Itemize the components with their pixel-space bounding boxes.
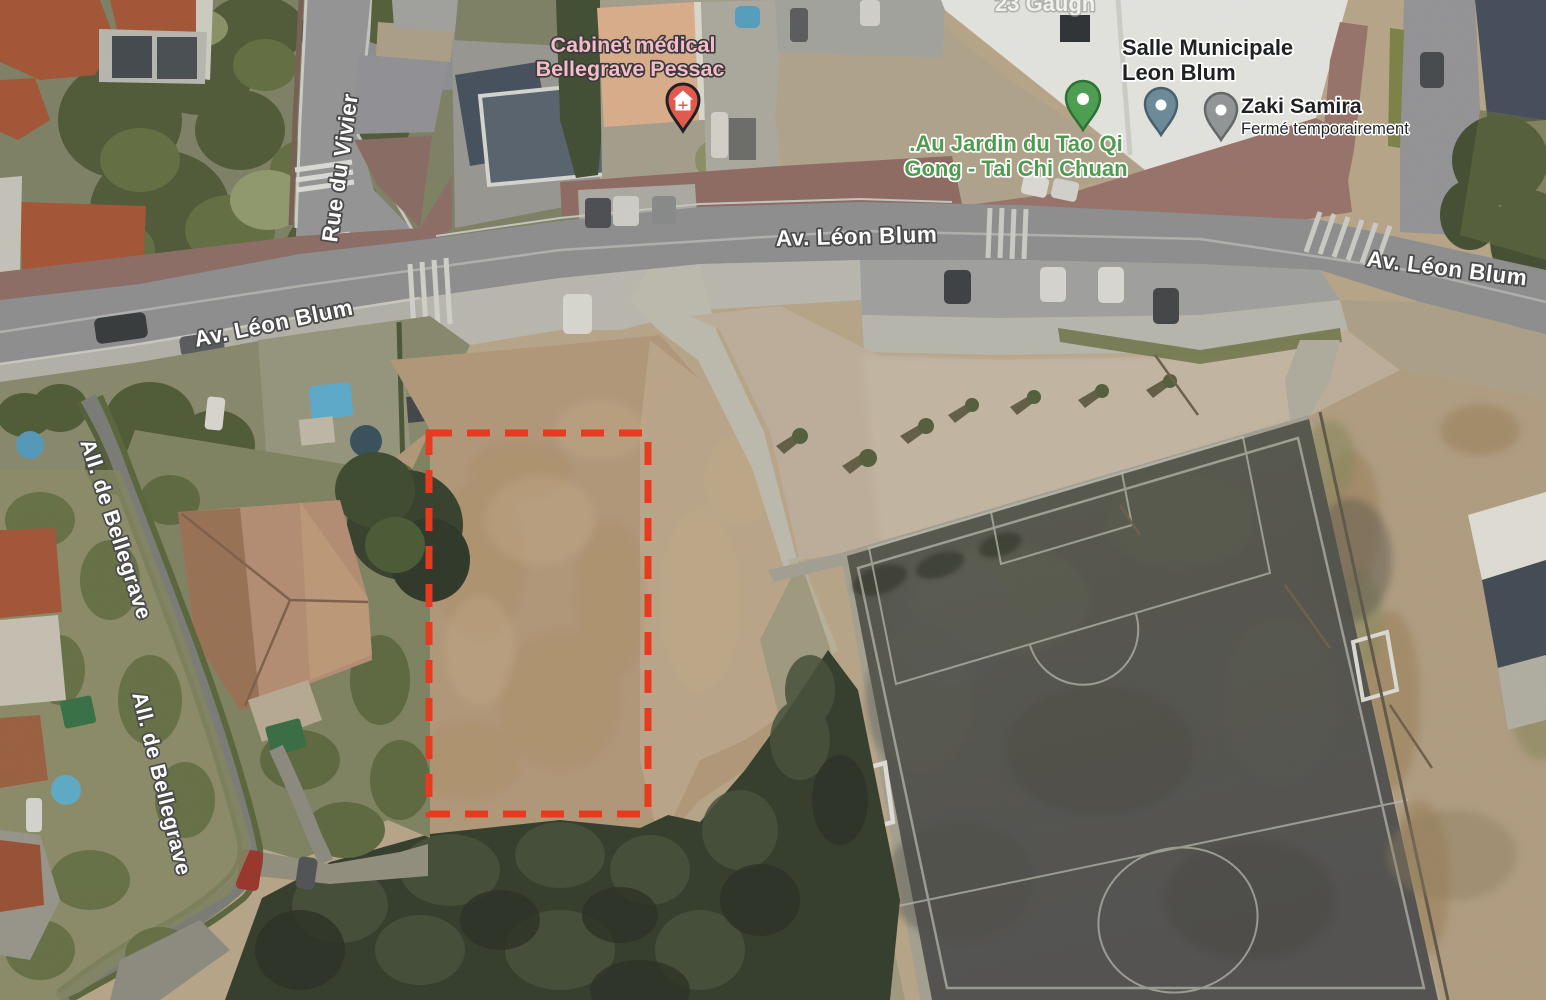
- svg-text:Bellegrave Pessac: Bellegrave Pessac: [536, 57, 725, 81]
- svg-text:Cabinet médical: Cabinet médical: [551, 33, 716, 57]
- svg-text:23 Gaugh: 23 Gaugh: [995, 0, 1095, 16]
- svg-text:Leon Blum: Leon Blum: [1122, 60, 1236, 85]
- svg-text:.Au Jardin du Tao Qi: .Au Jardin du Tao Qi: [909, 131, 1123, 156]
- svg-text:Fermé temporairement: Fermé temporairement: [1241, 120, 1409, 138]
- svg-text:Gong - Tai Chi Chuan: Gong - Tai Chi Chuan: [904, 156, 1127, 181]
- svg-text:Zaki Samira: Zaki Samira: [1241, 94, 1363, 118]
- svg-text:Salle Municipale: Salle Municipale: [1122, 35, 1293, 60]
- svg-text:Av. Léon Blum: Av. Léon Blum: [775, 222, 937, 251]
